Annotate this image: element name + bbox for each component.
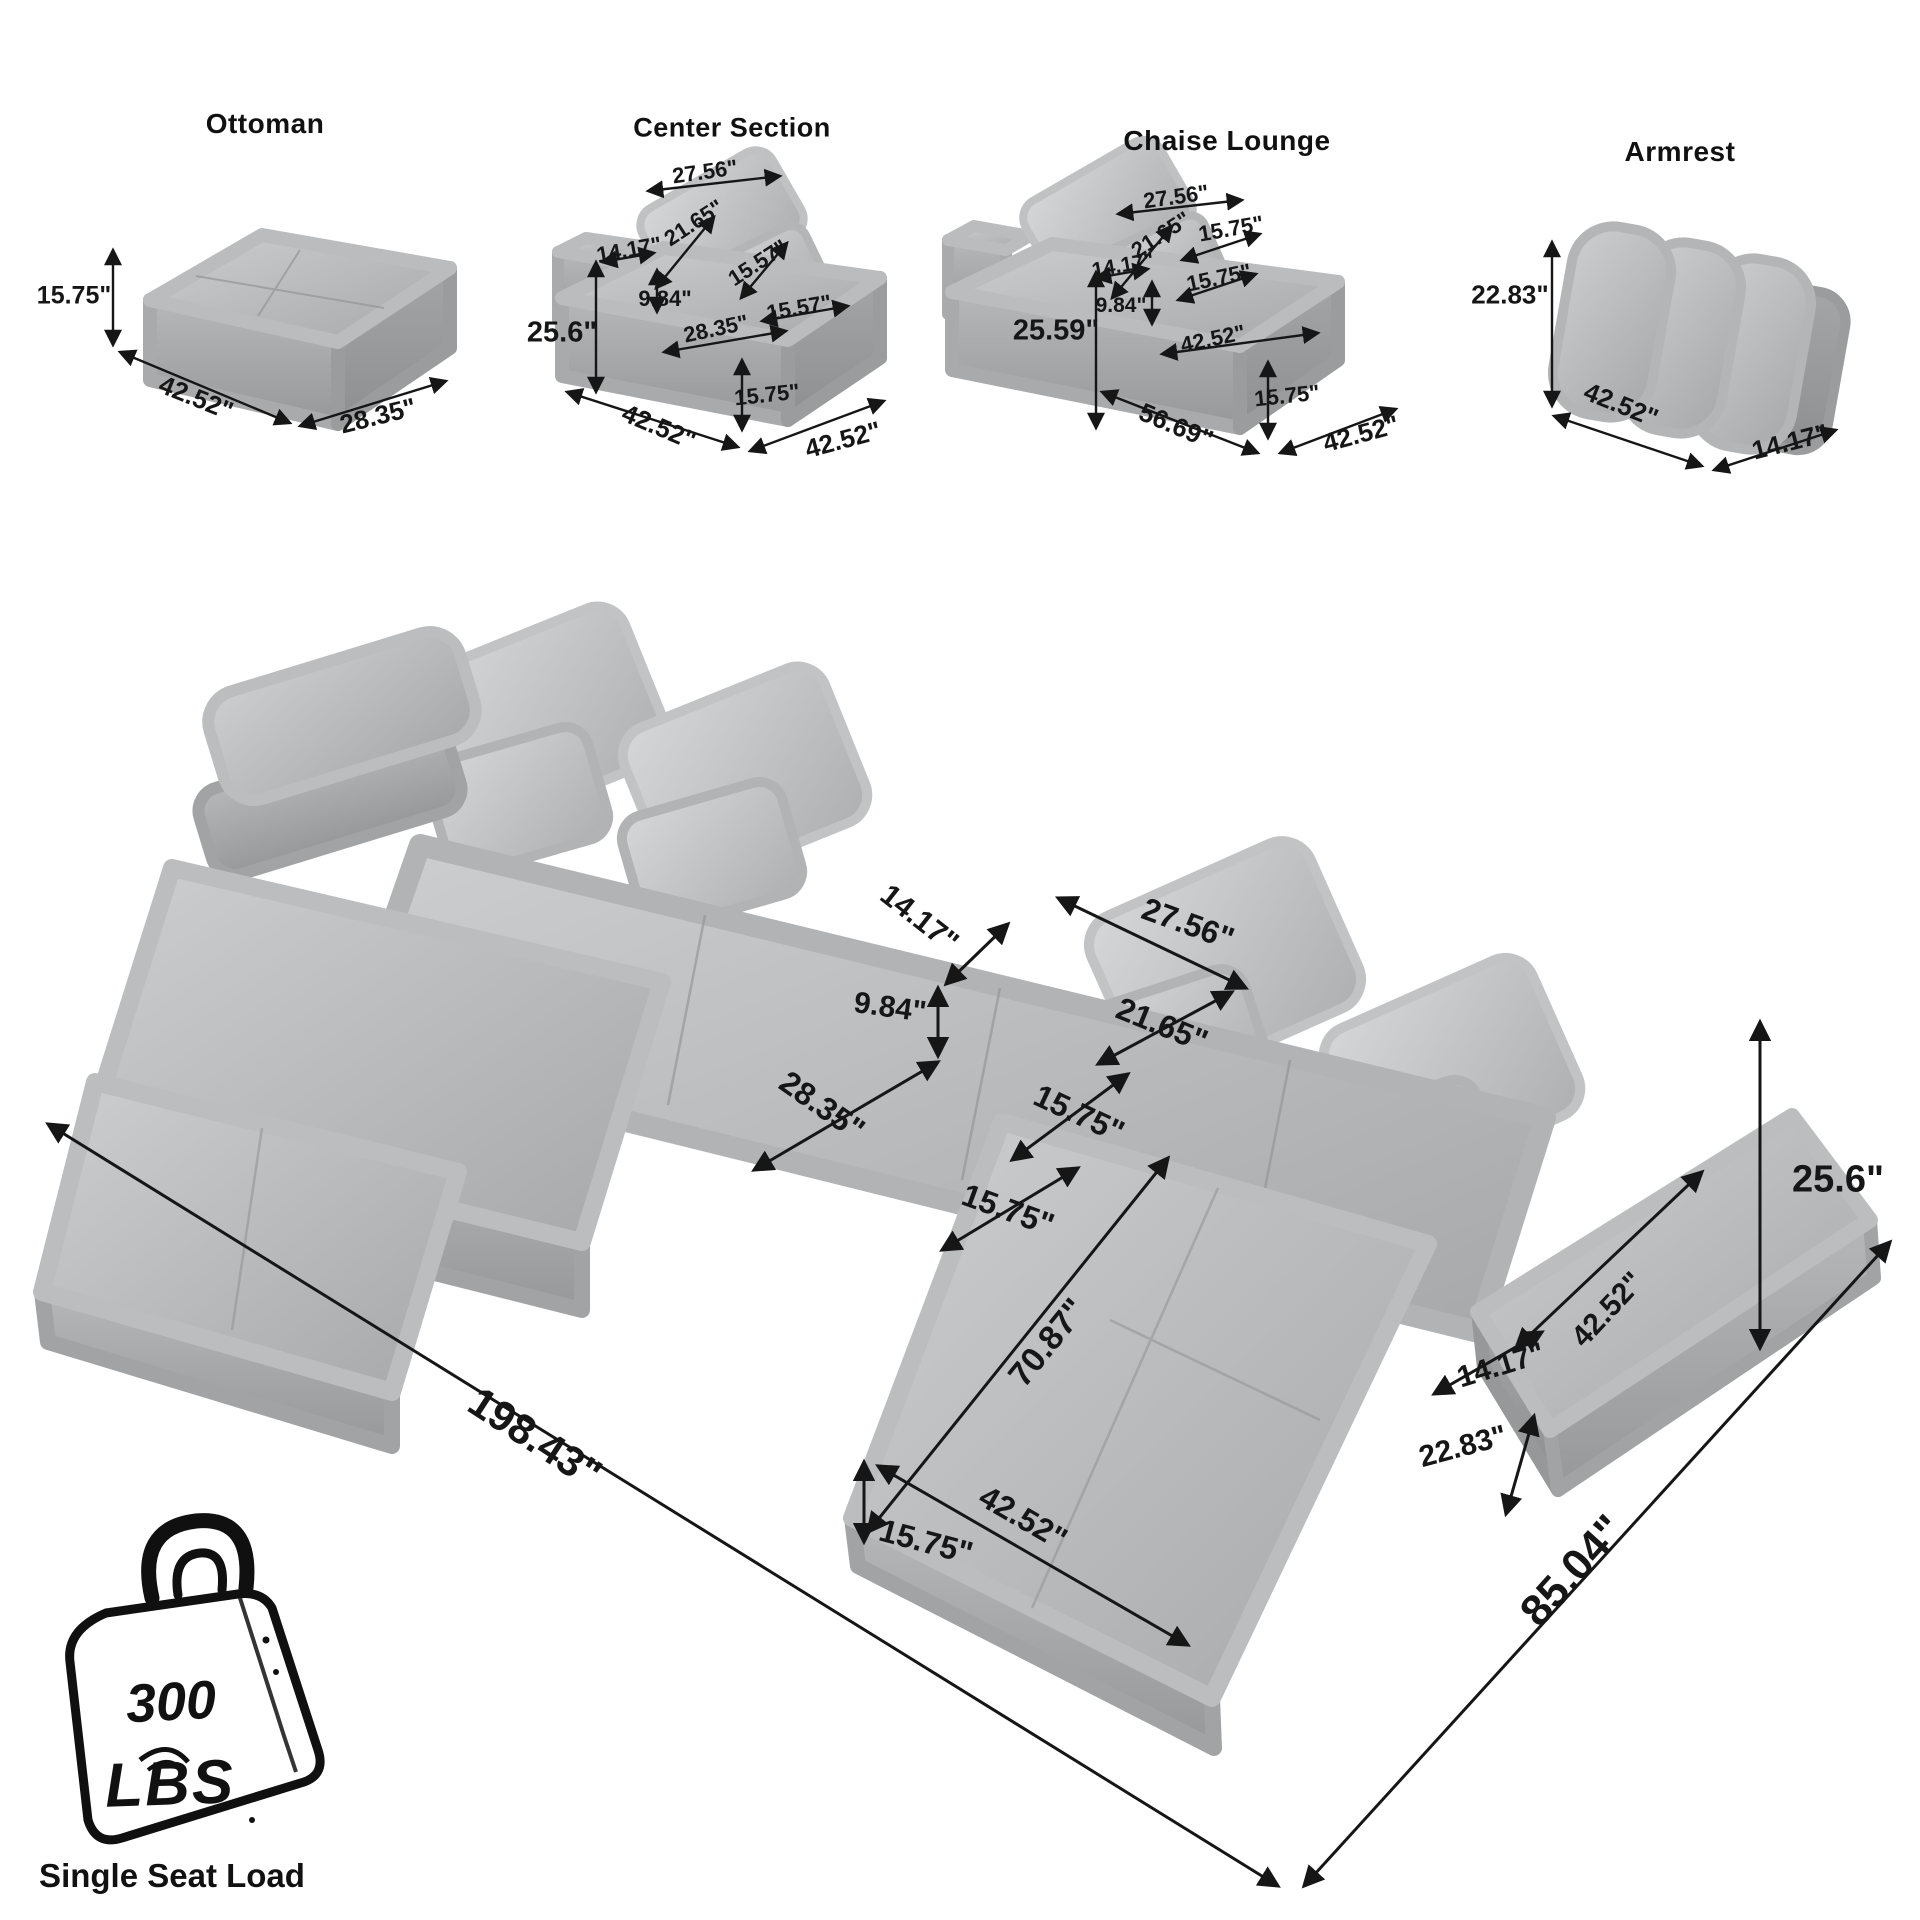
main-total-height-label: 25.6" [1792, 1159, 1884, 1202]
load-caption: Single Seat Load [39, 1857, 305, 1895]
ottoman-title: Ottoman [206, 108, 325, 140]
product-dimension-diagram: Ottoman Center Section Chaise Lounge Arm… [0, 0, 1920, 1920]
diagram-canvas [0, 0, 1920, 1920]
center-section-title: Center Section [633, 113, 831, 144]
chaise-total-height-label: 25.59" [1013, 315, 1099, 348]
load-weight-value: 300 [124, 1669, 217, 1736]
armrest-drawing [1546, 220, 1850, 456]
armrest-title: Armrest [1625, 136, 1736, 168]
center-total-height-label: 25.6" [527, 317, 597, 350]
chaise-lounge-title: Chaise Lounge [1123, 125, 1330, 157]
chaise-back-above-seat-label: 9.84" [1096, 294, 1147, 318]
armrest-height-label: 22.83" [1471, 280, 1548, 311]
ottoman-height-label: 15.75" [37, 282, 111, 311]
center-back-above-seat-label: 9.84" [638, 286, 691, 312]
center-section-drawing [558, 143, 880, 420]
load-weight-unit: LBS [104, 1746, 236, 1821]
